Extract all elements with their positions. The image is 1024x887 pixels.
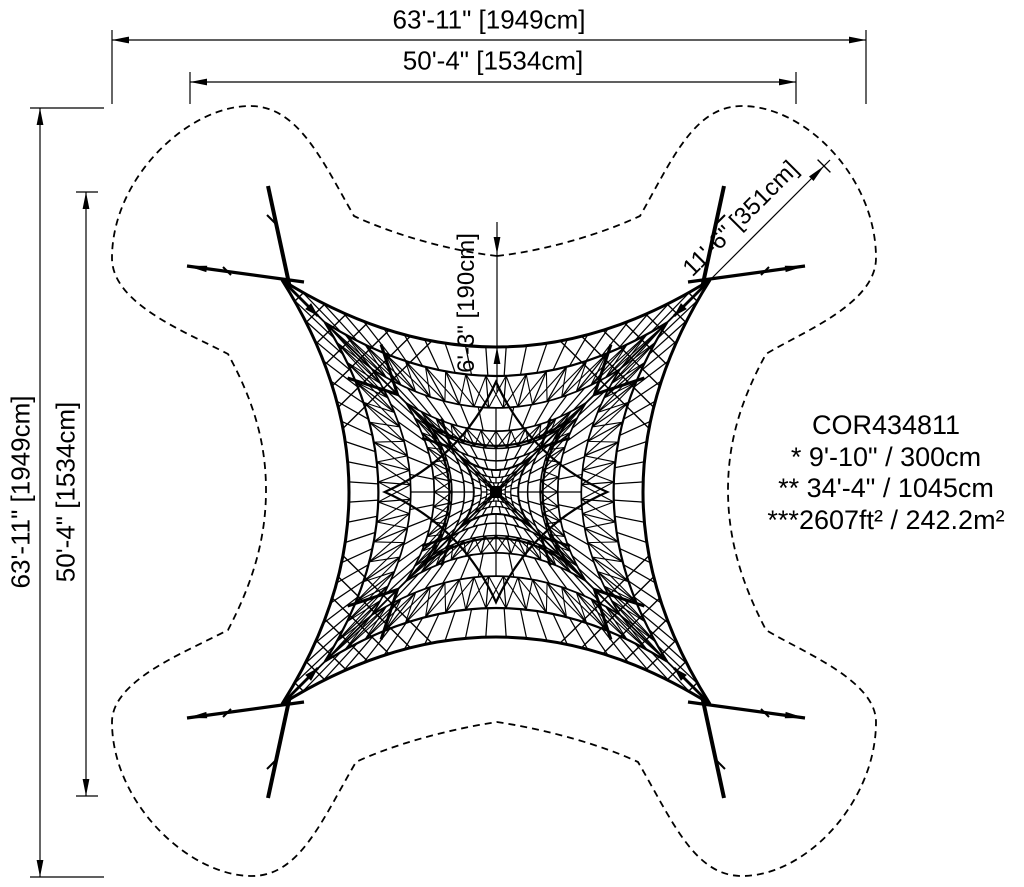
product-spec-use-zone: ** 34'-4" / 1045cm xyxy=(748,473,1024,505)
dim-top-inner-label: 50'-4" [1534cm] xyxy=(403,46,583,77)
dim-top-outer-label: 63'-11" [1949cm] xyxy=(393,5,586,36)
dim-left-outer-label: 63'-11" [1949cm] xyxy=(6,396,37,589)
product-code: COR434811 xyxy=(748,410,1024,442)
product-spec-net-height: * 9'-10" / 300cm xyxy=(748,442,1024,474)
dim-left-inner-label: 50'-4" [1534cm] xyxy=(51,402,82,582)
technical-drawing-page: 63'-11" [1949cm] 50'-4" [1534cm] 63'-11"… xyxy=(0,0,1024,887)
dim-edge-clearance-label: 6'-3" [190cm] xyxy=(453,233,481,373)
product-spec-area: ***2607ft² / 242.2m² xyxy=(748,505,1024,537)
dimension-lines xyxy=(30,30,866,877)
net-mesh xyxy=(282,280,710,704)
product-info-block: COR434811 * 9'-10" / 300cm ** 34'-4" / 1… xyxy=(748,410,1024,536)
